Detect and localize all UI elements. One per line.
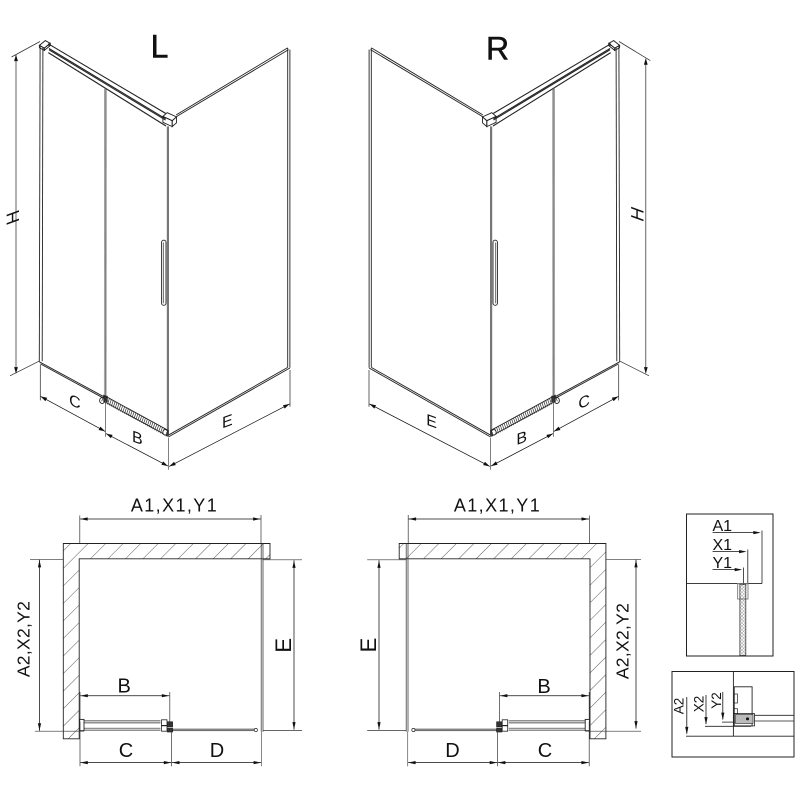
svg-text:D: D xyxy=(445,740,459,762)
svg-text:B: B xyxy=(537,676,550,698)
svg-text:E: E xyxy=(222,410,233,432)
svg-text:E: E xyxy=(356,638,381,653)
svg-text:B: B xyxy=(516,427,527,449)
svg-text:X2: X2 xyxy=(692,696,707,713)
svg-text:D: D xyxy=(210,740,224,762)
svg-text:E: E xyxy=(426,410,437,432)
svg-text:A2,X2,Y2: A2,X2,Y2 xyxy=(613,603,633,679)
svg-text:A2: A2 xyxy=(672,698,687,715)
svg-text:E: E xyxy=(271,638,296,653)
svg-text:C: C xyxy=(538,740,552,762)
svg-text:A1,X1,Y1: A1,X1,Y1 xyxy=(131,495,218,515)
svg-text:C: C xyxy=(119,740,133,762)
svg-text:Y2: Y2 xyxy=(709,692,724,709)
svg-text:B: B xyxy=(118,676,131,698)
svg-text:A2,X2,Y2: A2,X2,Y2 xyxy=(14,601,34,677)
svg-text:B: B xyxy=(132,427,143,449)
svg-text:R: R xyxy=(486,31,509,67)
svg-text:L: L xyxy=(151,29,169,65)
svg-text:A1,X1,Y1: A1,X1,Y1 xyxy=(454,495,541,515)
